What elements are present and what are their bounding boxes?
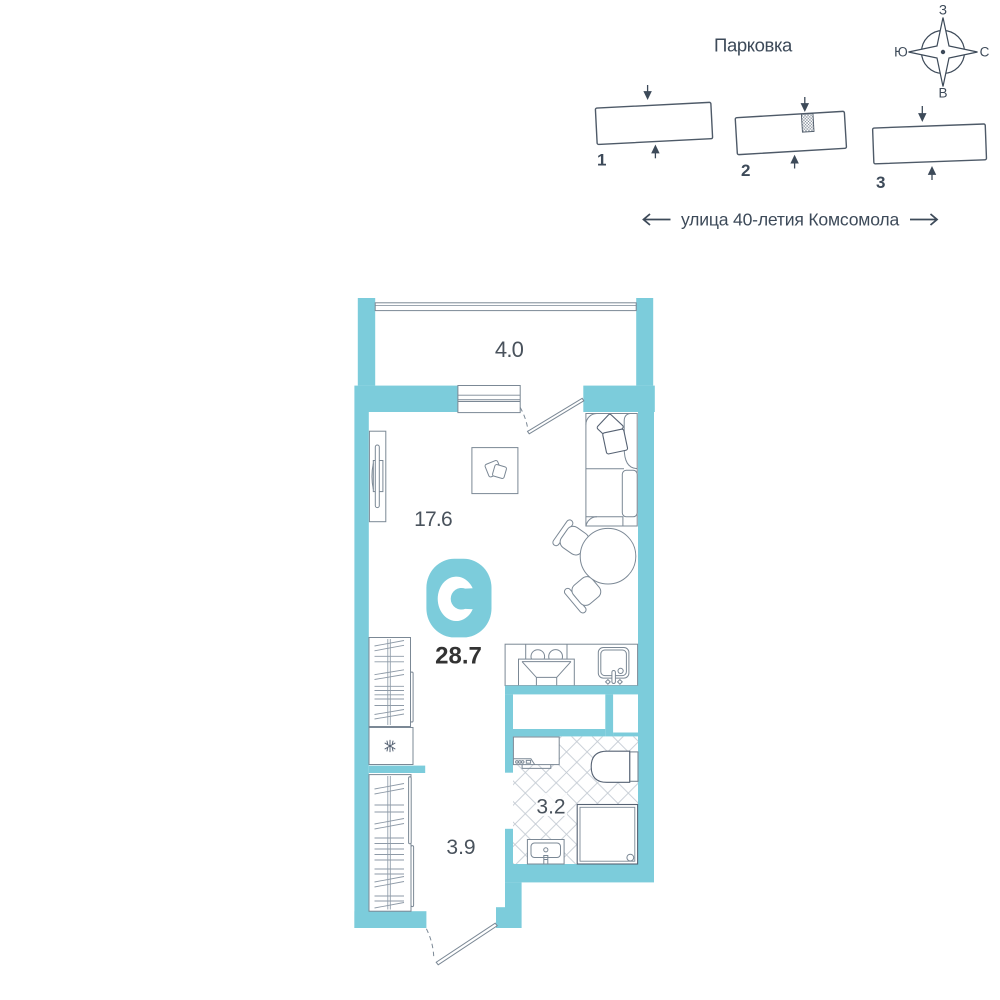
svg-text:С: С xyxy=(980,45,990,60)
svg-text:3.9: 3.9 xyxy=(446,836,475,859)
svg-text:3: 3 xyxy=(876,173,885,192)
svg-text:4.0: 4.0 xyxy=(495,337,524,362)
svg-text:1: 1 xyxy=(597,151,606,170)
svg-text:В: В xyxy=(938,86,947,101)
svg-text:17.6: 17.6 xyxy=(414,508,452,531)
svg-text:Ю: Ю xyxy=(894,45,908,60)
svg-text:2: 2 xyxy=(741,161,750,180)
svg-text:Парковка: Парковка xyxy=(714,35,793,56)
svg-text:3.2: 3.2 xyxy=(536,796,565,819)
svg-text:улица 40-летия Комсомола: улица 40-летия Комсомола xyxy=(681,210,900,230)
svg-text:З: З xyxy=(939,3,947,18)
svg-text:28.7: 28.7 xyxy=(435,643,482,670)
